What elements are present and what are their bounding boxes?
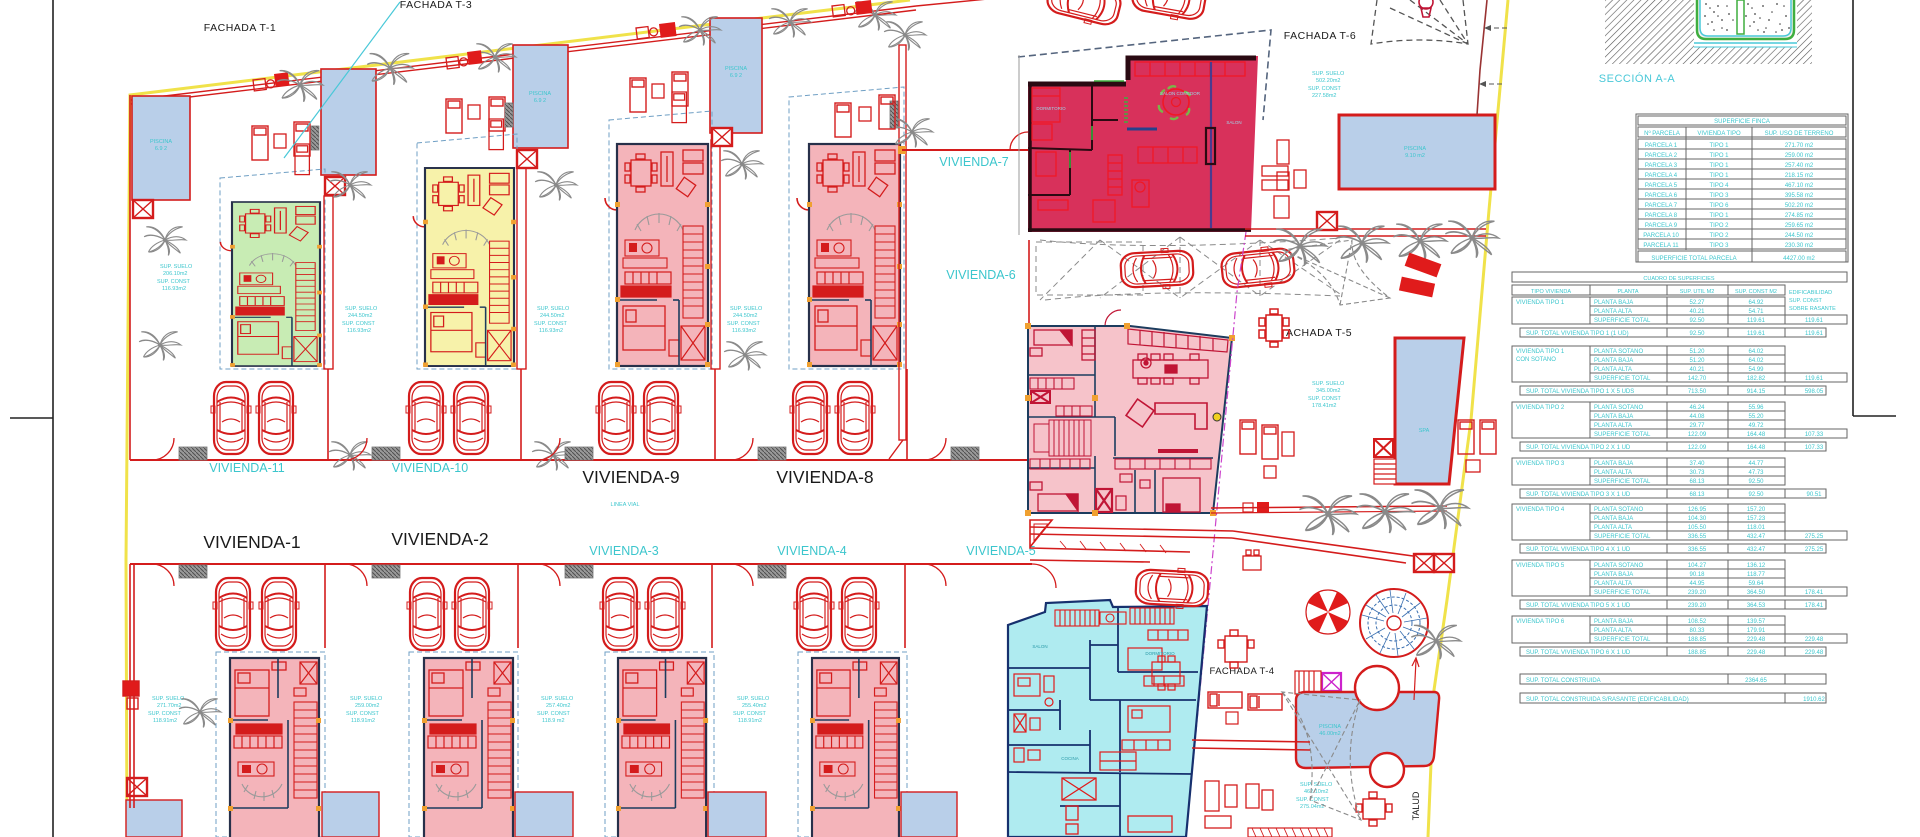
svg-text:244.50m2: 244.50m2 xyxy=(348,313,372,319)
svg-text:PLANTA BAJA: PLANTA BAJA xyxy=(1594,300,1633,306)
svg-text:104.27: 104.27 xyxy=(1688,563,1707,569)
svg-text:SUPERFICIE FINCA: SUPERFICIE FINCA xyxy=(1714,119,1770,125)
svg-text:VIVIENDA TIPO 1: VIVIENDA TIPO 1 xyxy=(1516,349,1565,355)
svg-text:259.00m2: 259.00m2 xyxy=(355,703,379,709)
svg-text:SUP. TOTAL VIVIENDA TIPO 2 X 1: SUP. TOTAL VIVIENDA TIPO 2 X 1 UD xyxy=(1526,445,1631,451)
svg-text:PLANTA ALTA: PLANTA ALTA xyxy=(1594,581,1632,587)
svg-text:VIVIENDA TIPO 1: VIVIENDA TIPO 1 xyxy=(1516,300,1565,306)
svg-text:SUP. CONST: SUP. CONST xyxy=(1308,396,1342,402)
svg-text:6.9 2: 6.9 2 xyxy=(534,98,546,104)
svg-text:PARCELA 4: PARCELA 4 xyxy=(1645,173,1678,179)
svg-text:467.10 m2: 467.10 m2 xyxy=(1785,183,1814,189)
svg-text:CON SOTANO: CON SOTANO xyxy=(1516,357,1556,363)
svg-text:SUP. CONST: SUP. CONST xyxy=(534,321,568,327)
svg-text:PARCELA 3: PARCELA 3 xyxy=(1645,163,1678,169)
svg-text:TALUD: TALUD xyxy=(1411,791,1421,820)
svg-text:136.12: 136.12 xyxy=(1747,563,1766,569)
svg-text:54.71: 54.71 xyxy=(1748,309,1764,315)
svg-text:SUP. CONST: SUP. CONST xyxy=(346,711,380,717)
svg-text:55.20: 55.20 xyxy=(1748,414,1764,420)
svg-text:462.10m2: 462.10m2 xyxy=(1304,789,1328,795)
svg-text:SUP. CONST M2: SUP. CONST M2 xyxy=(1735,289,1777,295)
svg-text:80.33: 80.33 xyxy=(1689,628,1705,634)
svg-text:2364.65: 2364.65 xyxy=(1745,678,1767,684)
svg-text:PLANTA BAJA: PLANTA BAJA xyxy=(1594,572,1633,578)
svg-text:SUPERFICIE TOTAL: SUPERFICIE TOTAL xyxy=(1594,534,1651,540)
svg-text:52.27: 52.27 xyxy=(1689,300,1705,306)
svg-text:PLANTA BAJA: PLANTA BAJA xyxy=(1594,461,1633,467)
svg-text:PLANTA SOTANO: PLANTA SOTANO xyxy=(1594,405,1643,411)
svg-text:SUPERFICIE TOTAL: SUPERFICIE TOTAL xyxy=(1594,376,1651,382)
svg-text:229.48: 229.48 xyxy=(1747,637,1766,643)
svg-text:271.70 m2: 271.70 m2 xyxy=(1785,143,1814,149)
svg-text:SUPERFICIE TOTAL: SUPERFICIE TOTAL xyxy=(1594,590,1651,596)
svg-text:PLANTA BAJA: PLANTA BAJA xyxy=(1594,414,1633,420)
svg-text:PARCELA 7: PARCELA 7 xyxy=(1645,203,1678,209)
svg-text:119.61: 119.61 xyxy=(1805,376,1824,382)
svg-text:TIPO 1: TIPO 1 xyxy=(1709,213,1729,219)
svg-text:SOBRE RASANTE: SOBRE RASANTE xyxy=(1789,306,1836,312)
svg-text:119.61: 119.61 xyxy=(1747,318,1766,324)
svg-text:118.91m2: 118.91m2 xyxy=(738,718,762,724)
svg-text:502.20 m2: 502.20 m2 xyxy=(1785,203,1814,209)
svg-text:FACHADA T-1: FACHADA T-1 xyxy=(204,22,276,34)
svg-text:VIVIENDA-9: VIVIENDA-9 xyxy=(582,467,679,487)
svg-text:92.50: 92.50 xyxy=(1748,492,1764,498)
svg-text:SUP. SUELO: SUP. SUELO xyxy=(1300,782,1333,788)
svg-text:713.50: 713.50 xyxy=(1688,389,1707,395)
svg-text:257.40 m2: 257.40 m2 xyxy=(1785,163,1814,169)
svg-text:244.50 m2: 244.50 m2 xyxy=(1785,233,1814,239)
svg-text:274.85 m2: 274.85 m2 xyxy=(1785,213,1814,219)
svg-text:VIVIENDA-6: VIVIENDA-6 xyxy=(946,268,1016,282)
svg-text:SUP. TOTAL VIVIENDA TIPO 1 (1: SUP. TOTAL VIVIENDA TIPO 1 (1 UD) xyxy=(1526,331,1629,337)
svg-text:VIVIENDA-3: VIVIENDA-3 xyxy=(589,544,659,558)
svg-text:PARCELA 2: PARCELA 2 xyxy=(1645,153,1678,159)
svg-text:SUPERFICIE TOTAL PARCELA: SUPERFICIE TOTAL PARCELA xyxy=(1651,256,1736,262)
svg-text:107.33: 107.33 xyxy=(1805,445,1824,451)
svg-text:SUP. TOTAL VIVIENDA TIPO 4 X 1: SUP. TOTAL VIVIENDA TIPO 4 X 1 UD xyxy=(1526,547,1631,553)
svg-text:229.48: 229.48 xyxy=(1805,637,1824,643)
svg-text:VIVIENDA-4: VIVIENDA-4 xyxy=(777,544,847,558)
svg-text:PLANTA ALTA: PLANTA ALTA xyxy=(1594,628,1632,634)
svg-text:336.55: 336.55 xyxy=(1688,534,1707,540)
svg-text:PLANTA SOTANO: PLANTA SOTANO xyxy=(1594,563,1643,569)
svg-text:9.10 m2: 9.10 m2 xyxy=(1405,153,1425,159)
svg-text:364.53: 364.53 xyxy=(1747,603,1766,609)
svg-text:40.21: 40.21 xyxy=(1689,367,1705,373)
svg-text:SALON COMEDOR: SALON COMEDOR xyxy=(1160,91,1201,96)
svg-text:SUP. USO DE TERRENO: SUP. USO DE TERRENO xyxy=(1765,131,1834,137)
svg-text:PARCELA 9: PARCELA 9 xyxy=(1645,223,1678,229)
svg-text:VIVIENDA-5: VIVIENDA-5 xyxy=(966,544,1036,558)
svg-text:SUP. SUELO: SUP. SUELO xyxy=(541,696,574,702)
svg-text:116.93m2: 116.93m2 xyxy=(732,328,756,334)
svg-text:PLANTA SOTANO: PLANTA SOTANO xyxy=(1594,349,1643,355)
svg-text:118.77: 118.77 xyxy=(1747,572,1766,578)
svg-text:119.61: 119.61 xyxy=(1747,331,1766,337)
svg-text:VIVIENDA-11: VIVIENDA-11 xyxy=(209,461,285,475)
svg-text:SUP. TOTAL VIVIENDA TIPO 5 X 1: SUP. TOTAL VIVIENDA TIPO 5 X 1 UD xyxy=(1526,603,1631,609)
svg-text:178.41: 178.41 xyxy=(1805,590,1824,596)
svg-text:44.95: 44.95 xyxy=(1689,581,1705,587)
svg-text:TIPO 1: TIPO 1 xyxy=(1709,163,1729,169)
svg-text:395.58 m2: 395.58 m2 xyxy=(1785,193,1814,199)
svg-text:46.00m2: 46.00m2 xyxy=(1319,731,1340,737)
svg-text:VIVIENDA TIPO 5: VIVIENDA TIPO 5 xyxy=(1516,563,1565,569)
svg-text:502.20m2: 502.20m2 xyxy=(1316,78,1340,84)
svg-text:SUPERFICIE TOTAL: SUPERFICIE TOTAL xyxy=(1594,637,1651,643)
svg-text:118.91m2: 118.91m2 xyxy=(153,718,177,724)
svg-text:64.02: 64.02 xyxy=(1748,349,1764,355)
svg-text:126.95: 126.95 xyxy=(1688,507,1707,513)
svg-text:VIVIENDA TIPO 3: VIVIENDA TIPO 3 xyxy=(1516,461,1565,467)
svg-text:30.73: 30.73 xyxy=(1689,470,1705,476)
svg-text:188.85: 188.85 xyxy=(1688,650,1707,656)
svg-text:SALON: SALON xyxy=(1032,644,1047,649)
svg-text:239.20: 239.20 xyxy=(1688,603,1707,609)
svg-text:SUP. CONST: SUP. CONST xyxy=(727,321,761,327)
svg-text:182.82: 182.82 xyxy=(1747,376,1766,382)
svg-text:345.00m2: 345.00m2 xyxy=(1316,388,1340,394)
svg-text:259.65 m2: 259.65 m2 xyxy=(1785,223,1814,229)
svg-text:LINEA VIAL: LINEA VIAL xyxy=(610,502,639,508)
svg-text:SUP. SUELO: SUP. SUELO xyxy=(350,696,383,702)
svg-text:40.21: 40.21 xyxy=(1689,309,1705,315)
svg-text:206.10m2: 206.10m2 xyxy=(163,271,187,277)
svg-text:DORMITORIO: DORMITORIO xyxy=(1036,106,1066,111)
svg-text:432.47: 432.47 xyxy=(1747,534,1766,540)
svg-text:TIPO 3: TIPO 3 xyxy=(1709,243,1729,249)
svg-text:92.50: 92.50 xyxy=(1748,479,1764,485)
svg-text:TIPO 6: TIPO 6 xyxy=(1709,203,1729,209)
svg-text:SUP. CONST: SUP. CONST xyxy=(733,711,767,717)
svg-text:VIVIENDA-10: VIVIENDA-10 xyxy=(392,461,468,475)
svg-text:229.48: 229.48 xyxy=(1805,650,1824,656)
svg-text:37.40: 37.40 xyxy=(1689,461,1705,467)
svg-text:PISCINA: PISCINA xyxy=(529,91,551,97)
svg-text:PISCINA: PISCINA xyxy=(1319,724,1341,730)
svg-text:116.93m2: 116.93m2 xyxy=(347,328,371,334)
svg-text:PLANTA BAJA: PLANTA BAJA xyxy=(1594,516,1633,522)
svg-text:PLANTA ALTA: PLANTA ALTA xyxy=(1594,423,1632,429)
svg-text:105.50: 105.50 xyxy=(1688,525,1707,531)
svg-text:SUP. SUELO: SUP. SUELO xyxy=(537,306,570,312)
svg-text:164.48: 164.48 xyxy=(1747,445,1766,451)
svg-text:VIVIENDA TIPO 2: VIVIENDA TIPO 2 xyxy=(1516,405,1565,411)
svg-text:271.70m2: 271.70m2 xyxy=(157,703,181,709)
svg-text:SUPERFICIE TOTAL: SUPERFICIE TOTAL xyxy=(1594,479,1651,485)
svg-text:SUPERFICIE TOTAL: SUPERFICIE TOTAL xyxy=(1594,432,1651,438)
svg-text:64.02: 64.02 xyxy=(1748,358,1764,364)
svg-text:TIPO 1: TIPO 1 xyxy=(1709,153,1729,159)
svg-text:PLANTA SOTANO: PLANTA SOTANO xyxy=(1594,507,1643,513)
svg-text:PLANTA ALTA: PLANTA ALTA xyxy=(1594,367,1632,373)
svg-text:SUP. TOTAL VIVIENDA TIPO 6 X 1: SUP. TOTAL VIVIENDA TIPO 6 X 1 UD xyxy=(1526,650,1631,656)
svg-text:TIPO 3: TIPO 3 xyxy=(1709,193,1729,199)
svg-text:PISCINA: PISCINA xyxy=(1404,146,1426,152)
svg-text:PARCELA 11: PARCELA 11 xyxy=(1643,243,1679,249)
svg-text:VIVIENDA-2: VIVIENDA-2 xyxy=(391,529,488,549)
svg-text:SUP. SUELO: SUP. SUELO xyxy=(160,264,193,270)
svg-text:SALON: SALON xyxy=(1226,120,1241,125)
svg-text:157.20: 157.20 xyxy=(1747,507,1766,513)
svg-text:257.40m2: 257.40m2 xyxy=(546,703,570,709)
svg-text:TIPO 4: TIPO 4 xyxy=(1709,183,1729,189)
svg-text:44.77: 44.77 xyxy=(1748,461,1764,467)
svg-text:179.91: 179.91 xyxy=(1747,628,1766,634)
svg-text:SUP. CONST: SUP. CONST xyxy=(1296,797,1330,803)
svg-text:230.30 m2: 230.30 m2 xyxy=(1785,243,1814,249)
svg-text:244.50m2: 244.50m2 xyxy=(733,313,757,319)
svg-text:122.09: 122.09 xyxy=(1688,432,1707,438)
svg-text:64.92: 64.92 xyxy=(1748,300,1764,306)
svg-text:SECCIÓN A-A: SECCIÓN A-A xyxy=(1599,72,1676,85)
svg-text:PLANTA ALTA: PLANTA ALTA xyxy=(1594,470,1632,476)
svg-text:COCINA: COCINA xyxy=(1061,756,1079,761)
svg-text:PARCELA 5: PARCELA 5 xyxy=(1645,183,1678,189)
svg-text:PARCELA 8: PARCELA 8 xyxy=(1645,213,1678,219)
svg-text:119.61: 119.61 xyxy=(1805,318,1824,324)
svg-text:49.72: 49.72 xyxy=(1748,423,1764,429)
svg-text:54.99: 54.99 xyxy=(1748,367,1764,373)
svg-text:EDIFICABILIDAD: EDIFICABILIDAD xyxy=(1789,290,1832,296)
svg-text:90.51: 90.51 xyxy=(1806,492,1822,498)
svg-text:116.93m2: 116.93m2 xyxy=(162,286,186,292)
svg-text:51.20: 51.20 xyxy=(1689,358,1705,364)
svg-text:178.41m2: 178.41m2 xyxy=(1312,403,1336,409)
svg-text:SUP. TOTAL CONSTRUIDA: SUP. TOTAL CONSTRUIDA xyxy=(1526,678,1601,684)
svg-text:107.33: 107.33 xyxy=(1805,432,1824,438)
svg-text:275.25: 275.25 xyxy=(1805,547,1824,553)
svg-text:TIPO 1: TIPO 1 xyxy=(1709,173,1729,179)
svg-text:PLANTA BAJA: PLANTA BAJA xyxy=(1594,358,1633,364)
svg-text:90.18: 90.18 xyxy=(1689,572,1705,578)
svg-text:CUADRO DE SUPERFICIES: CUADRO DE SUPERFICIES xyxy=(1643,276,1715,282)
svg-text:119.61: 119.61 xyxy=(1805,331,1824,337)
svg-text:244.50m2: 244.50m2 xyxy=(540,313,564,319)
svg-text:218.15 m2: 218.15 m2 xyxy=(1785,173,1814,179)
svg-text:SUP. CONST: SUP. CONST xyxy=(342,321,376,327)
svg-text:239.20: 239.20 xyxy=(1688,590,1707,596)
svg-text:227.58m2: 227.58m2 xyxy=(1312,93,1336,99)
svg-text:SUP. CONST: SUP. CONST xyxy=(537,711,571,717)
svg-text:44.08: 44.08 xyxy=(1689,414,1705,420)
svg-text:139.57: 139.57 xyxy=(1747,619,1766,625)
svg-text:68.13: 68.13 xyxy=(1689,479,1705,485)
svg-text:178.41: 178.41 xyxy=(1805,603,1824,609)
svg-text:VIVIENDA TIPO 6: VIVIENDA TIPO 6 xyxy=(1516,619,1565,625)
svg-text:157.23: 157.23 xyxy=(1747,516,1766,522)
svg-text:914.15: 914.15 xyxy=(1747,389,1766,395)
svg-text:164.48: 164.48 xyxy=(1747,432,1766,438)
svg-text:TIPO 1: TIPO 1 xyxy=(1709,143,1729,149)
svg-text:VIVIENDA TIPO: VIVIENDA TIPO xyxy=(1697,131,1741,137)
svg-text:275.25: 275.25 xyxy=(1805,534,1824,540)
svg-text:104.30: 104.30 xyxy=(1688,516,1707,522)
svg-text:116.93m2: 116.93m2 xyxy=(539,328,563,334)
svg-text:PISCINA: PISCINA xyxy=(725,66,747,72)
svg-text:SUP. CONST: SUP. CONST xyxy=(1789,298,1823,304)
svg-text:336.55: 336.55 xyxy=(1688,547,1707,553)
svg-text:SUP. CONST: SUP. CONST xyxy=(157,279,191,285)
svg-text:6.9 2: 6.9 2 xyxy=(730,73,742,79)
svg-text:VIVIENDA-8: VIVIENDA-8 xyxy=(776,467,873,487)
svg-text:68.13: 68.13 xyxy=(1689,492,1705,498)
svg-text:PARCELA 10: PARCELA 10 xyxy=(1643,233,1679,239)
svg-text:FACHADA T-3: FACHADA T-3 xyxy=(400,0,472,11)
svg-text:6.9 2: 6.9 2 xyxy=(155,146,167,152)
svg-text:SUP. CONST: SUP. CONST xyxy=(148,711,182,717)
svg-text:SUP. TOTAL VIVIENDA TIPO 3 X 1: SUP. TOTAL VIVIENDA TIPO 3 X 1 UD xyxy=(1526,492,1631,498)
svg-text:275.04m2: 275.04m2 xyxy=(1300,804,1324,810)
svg-text:255.40m2: 255.40m2 xyxy=(742,703,766,709)
svg-text:FACHADA T-6: FACHADA T-6 xyxy=(1284,30,1356,42)
svg-text:55.96: 55.96 xyxy=(1748,405,1764,411)
svg-text:122.09: 122.09 xyxy=(1688,445,1707,451)
svg-text:51.20: 51.20 xyxy=(1689,349,1705,355)
svg-text:188.85: 188.85 xyxy=(1688,637,1707,643)
svg-text:364.50: 364.50 xyxy=(1747,590,1766,596)
svg-text:46.24: 46.24 xyxy=(1689,405,1705,411)
svg-text:SPA: SPA xyxy=(1419,428,1430,434)
svg-text:118.91m2: 118.91m2 xyxy=(351,718,375,724)
svg-text:SUPERFICIE TOTAL: SUPERFICIE TOTAL xyxy=(1594,318,1651,324)
svg-text:SUP. SUELO: SUP. SUELO xyxy=(1312,381,1345,387)
svg-text:Nº PARCELA: Nº PARCELA xyxy=(1644,130,1680,137)
svg-text:VIVIENDA TIPO 4: VIVIENDA TIPO 4 xyxy=(1516,507,1565,513)
svg-text:229.48: 229.48 xyxy=(1747,650,1766,656)
svg-text:SUP. CONST: SUP. CONST xyxy=(1308,86,1342,92)
svg-text:SUP. TOTAL CONSTRUIDA S/RASANT: SUP. TOTAL CONSTRUIDA S/RASANTE (EDIFICA… xyxy=(1526,697,1689,703)
svg-text:TIPO VIVIENDA: TIPO VIVIENDA xyxy=(1531,289,1571,295)
svg-text:PLANTA: PLANTA xyxy=(1618,289,1639,295)
svg-text:TIPO 2: TIPO 2 xyxy=(1709,233,1729,239)
svg-text:SUP. UTIL M2: SUP. UTIL M2 xyxy=(1680,289,1715,295)
svg-text:SUP. SUELO: SUP. SUELO xyxy=(737,696,770,702)
svg-text:1910.62: 1910.62 xyxy=(1803,697,1825,703)
svg-text:47.73: 47.73 xyxy=(1748,470,1764,476)
svg-text:29.77: 29.77 xyxy=(1689,423,1705,429)
svg-text:259.00 m2: 259.00 m2 xyxy=(1785,153,1814,159)
svg-text:PLANTA ALTA: PLANTA ALTA xyxy=(1594,309,1632,315)
svg-text:PLANTA BAJA: PLANTA BAJA xyxy=(1594,619,1633,625)
svg-text:118.9 m2: 118.9 m2 xyxy=(542,718,565,724)
svg-text:ACHADA T-5: ACHADA T-5 xyxy=(1286,327,1352,339)
svg-text:SUP. SUELO: SUP. SUELO xyxy=(345,306,378,312)
svg-text:VIVIENDA-1: VIVIENDA-1 xyxy=(203,532,300,552)
svg-text:598.05: 598.05 xyxy=(1805,389,1824,395)
svg-text:92.50: 92.50 xyxy=(1689,331,1705,337)
svg-text:108.52: 108.52 xyxy=(1688,619,1707,625)
svg-text:PISCINA: PISCINA xyxy=(150,139,172,145)
svg-text:SUP. SUELO: SUP. SUELO xyxy=(730,306,763,312)
svg-text:4427.00 m2: 4427.00 m2 xyxy=(1783,256,1815,262)
svg-text:VIVIENDA-7: VIVIENDA-7 xyxy=(939,155,1009,169)
svg-text:DORMITORIO: DORMITORIO xyxy=(1145,651,1175,656)
svg-text:118.01: 118.01 xyxy=(1747,525,1766,531)
svg-text:TIPO 2: TIPO 2 xyxy=(1709,223,1729,229)
svg-text:SUP. SUELO: SUP. SUELO xyxy=(152,696,185,702)
svg-text:PLANTA ALTA: PLANTA ALTA xyxy=(1594,525,1632,531)
svg-text:92.50: 92.50 xyxy=(1689,318,1705,324)
svg-text:PARCELA 6: PARCELA 6 xyxy=(1645,193,1678,199)
svg-text:142.70: 142.70 xyxy=(1688,376,1707,382)
svg-text:SUP. TOTAL VIVIENDA TIPO 1 X 5: SUP. TOTAL VIVIENDA TIPO 1 X 5 UDS xyxy=(1526,389,1634,395)
svg-text:59.64: 59.64 xyxy=(1748,581,1764,587)
svg-text:SUP. SUELO: SUP. SUELO xyxy=(1312,71,1345,77)
svg-text:432.47: 432.47 xyxy=(1747,547,1766,553)
svg-text:FACHADA T-4: FACHADA T-4 xyxy=(1210,666,1275,677)
svg-text:PARCELA 1: PARCELA 1 xyxy=(1645,143,1678,149)
